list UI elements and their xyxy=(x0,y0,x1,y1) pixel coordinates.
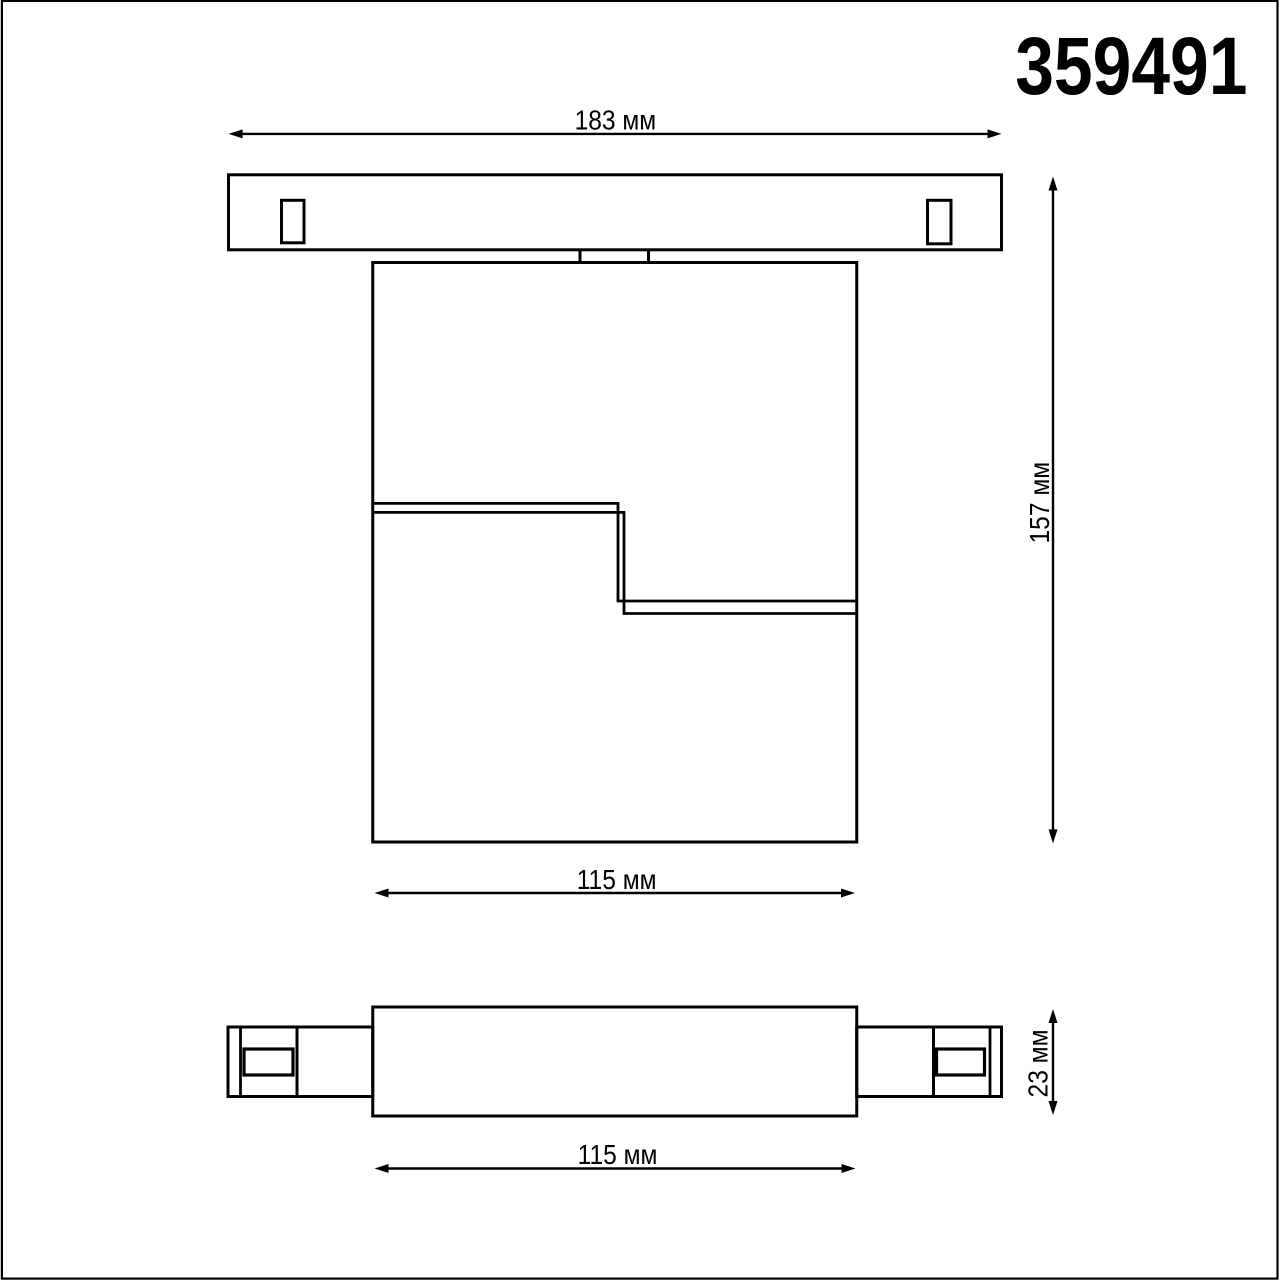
svg-text:183 мм: 183 мм xyxy=(575,104,657,136)
svg-text:115 мм: 115 мм xyxy=(577,864,657,896)
svg-text:23 мм: 23 мм xyxy=(1022,1030,1054,1098)
svg-text:115 мм: 115 мм xyxy=(578,1139,658,1171)
svg-text:359491: 359491 xyxy=(1015,21,1247,113)
svg-text:157 мм: 157 мм xyxy=(1024,462,1056,544)
